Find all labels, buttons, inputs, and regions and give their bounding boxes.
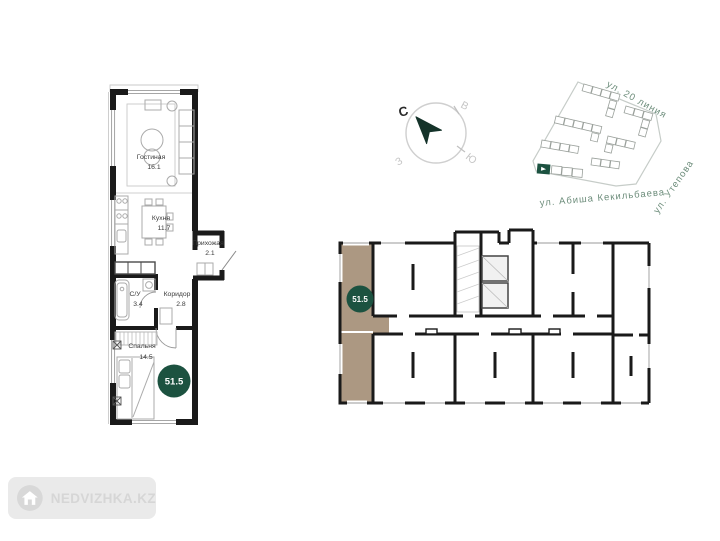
compass-ring bbox=[406, 103, 466, 163]
compass-south-label: Ю bbox=[463, 151, 479, 167]
compass-north-label: С bbox=[397, 103, 411, 120]
room-label-corridor: Коридор bbox=[164, 291, 191, 298]
compass-east-label: В bbox=[459, 99, 471, 113]
living-furniture bbox=[127, 100, 194, 186]
street-label-bottom: ул. Абиша Кекильбаева bbox=[539, 187, 665, 209]
room-label-bathroom: С/У bbox=[129, 291, 141, 298]
bathroom-fixtures bbox=[115, 279, 155, 320]
watermark-text: NEDVIZHKA.KZ bbox=[51, 491, 156, 506]
hallway-furniture bbox=[197, 263, 213, 275]
room-area-bathroom: 3.4 bbox=[133, 301, 143, 308]
apartment-unit-plan: Гостиная 16.1 Кухня 11.7 Прихожая 2.1 С/… bbox=[98, 80, 238, 432]
listing-floorplan-image: Гостиная 16.1 Кухня 11.7 Прихожая 2.1 С/… bbox=[0, 0, 720, 541]
compass-icon: С В Ю З bbox=[388, 92, 480, 184]
highlighted-unit bbox=[341, 243, 389, 403]
entrance-door bbox=[222, 251, 236, 270]
room-label-kitchen: Кухня bbox=[152, 215, 171, 222]
room-label-living: Гостиная bbox=[137, 154, 166, 161]
floor-area-badge-value: 51.5 bbox=[352, 295, 368, 304]
floor-area-badge: 51.5 bbox=[347, 286, 374, 313]
room-area-hall: 2.1 bbox=[205, 250, 215, 257]
compass-west-label: З bbox=[393, 155, 405, 169]
building-floor-plan: 51.5 bbox=[333, 226, 655, 422]
corridor-cabinet bbox=[160, 308, 172, 324]
room-label-hall: Прихожая bbox=[192, 240, 224, 247]
house-icon bbox=[17, 485, 43, 511]
stair-core bbox=[457, 246, 508, 312]
compass-tick-se bbox=[457, 146, 465, 152]
unit-area-badge: 51.5 bbox=[158, 365, 191, 398]
watermark-logo: NEDVIZHKA.KZ bbox=[8, 477, 156, 519]
unit-area-badge-value: 51.5 bbox=[165, 377, 184, 388]
room-area-corridor: 2.8 bbox=[176, 301, 186, 308]
north-arrow-icon bbox=[409, 110, 442, 143]
room-area-living: 16.1 bbox=[147, 164, 160, 171]
kitchen-furniture bbox=[115, 196, 173, 274]
room-label-bedroom: Спальня bbox=[128, 343, 156, 350]
room-area-kitchen: 11.7 bbox=[158, 225, 171, 232]
site-plan: ул. 20 линия ул. Утепова ул. Абиша Кекил… bbox=[528, 66, 720, 220]
room-area-bedroom: 14.5 bbox=[139, 354, 152, 361]
